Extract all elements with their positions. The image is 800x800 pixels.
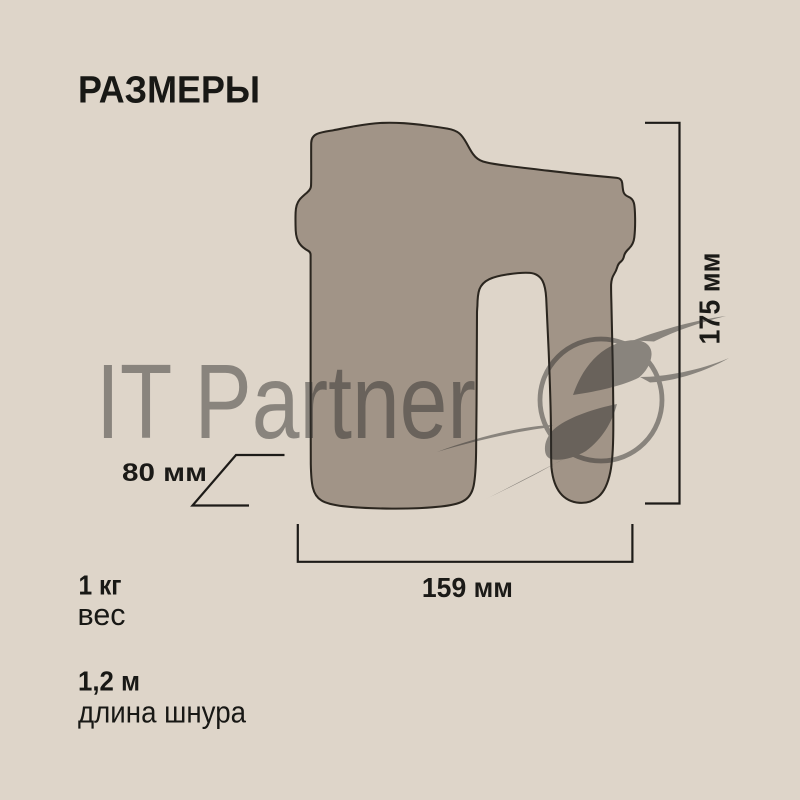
svg-text:1,2 м: 1,2 м	[78, 666, 140, 697]
svg-text:IT Partner: IT Partner	[96, 343, 476, 461]
svg-text:159 мм: 159 мм	[422, 572, 513, 603]
svg-text:вес: вес	[78, 597, 126, 632]
svg-text:80 мм: 80 мм	[122, 459, 207, 487]
svg-text:длина шнура: длина шнура	[78, 695, 247, 730]
svg-text:РАЗМЕРЫ: РАЗМЕРЫ	[78, 70, 260, 112]
svg-text:175 мм: 175 мм	[695, 253, 727, 345]
svg-text:1 кг: 1 кг	[79, 570, 122, 601]
